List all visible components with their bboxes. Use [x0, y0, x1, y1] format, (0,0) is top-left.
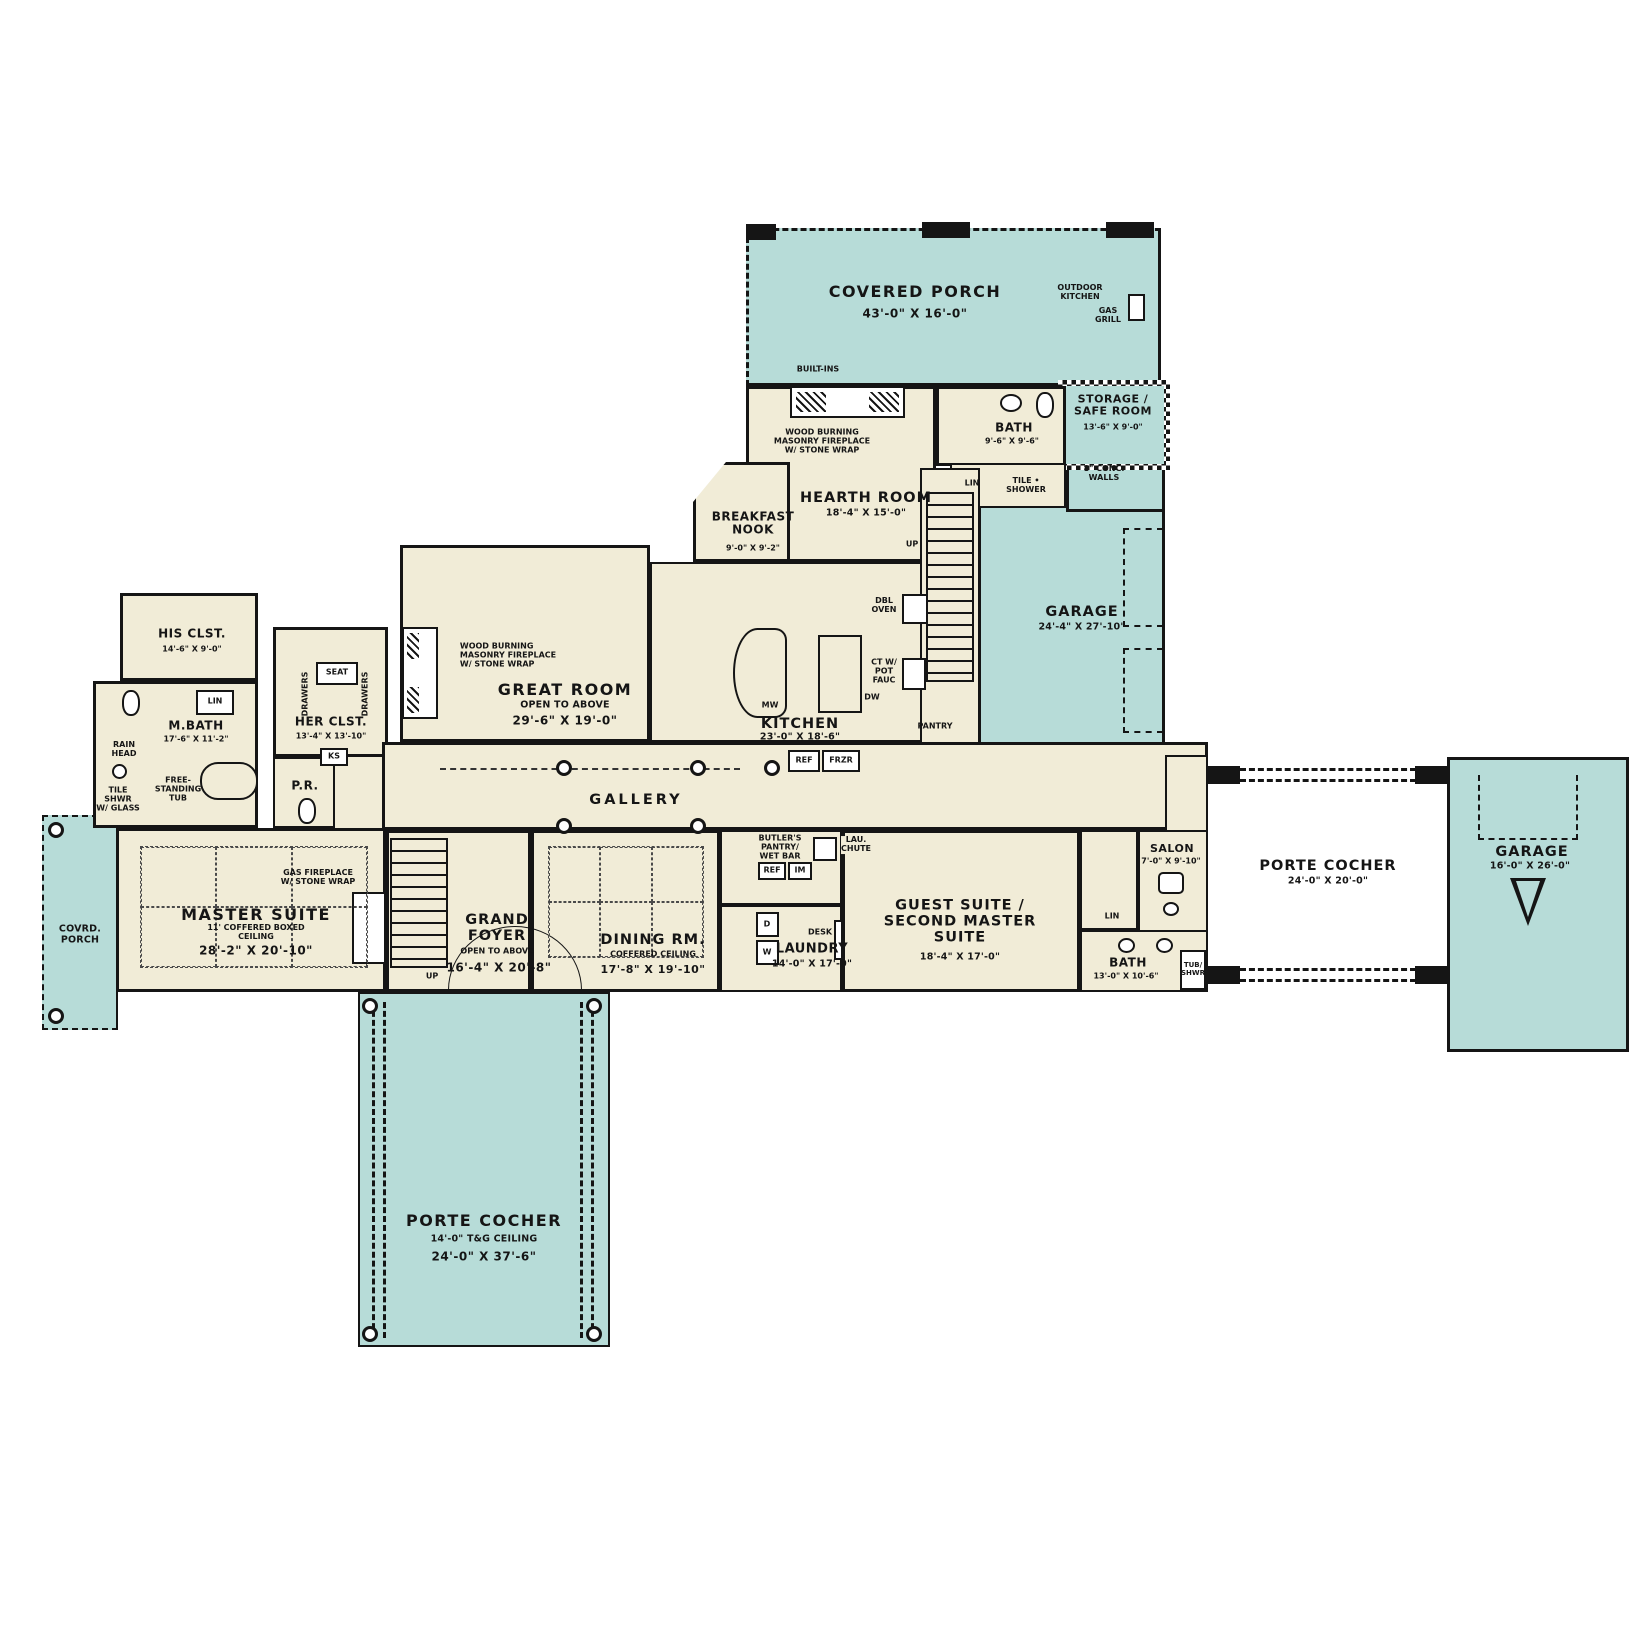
column-post [48, 822, 64, 838]
gallery-column-post [690, 760, 706, 776]
guest-bath-sink-icon [1118, 938, 1135, 953]
gas-grill-label: GAS GRILL [1095, 307, 1121, 325]
beam-post [1415, 766, 1447, 784]
garage-main-label: GARAGE [1045, 604, 1118, 620]
lin-label: LIN [208, 698, 223, 707]
garage-door-recess [1123, 528, 1163, 627]
porte-cocher-bottom-region [358, 992, 610, 1347]
gallery-label: GALLERY [589, 792, 682, 808]
washer-label: W [763, 949, 772, 958]
gallery-column-post [556, 760, 572, 776]
porch-post [746, 224, 776, 240]
great-room-dims: 29'-6" X 19'-0" [512, 714, 617, 727]
guest-suite-dims: 18'-4" X 17'-0" [920, 953, 1000, 964]
drawers-label: DRAWERS [362, 672, 371, 717]
up-label: UP [424, 972, 440, 983]
bath-guest-label: BATH [1109, 956, 1147, 969]
grand-foyer-dims: 16'-4" X 20'-8" [446, 961, 551, 974]
column-post [586, 998, 602, 1014]
great-room-sub: OPEN TO ABOVE [520, 701, 610, 712]
salon-chair-icon [1158, 872, 1184, 894]
dbl-oven-label: DBL OVEN [872, 597, 897, 615]
porte-cocher-beam [1240, 768, 1416, 782]
up-label: UP [904, 540, 920, 551]
storage-label: STORAGE / SAFE ROOM [1074, 394, 1152, 419]
gas-fireplace-label: GAS FIREPLACE W/ STONE WRAP [281, 869, 356, 887]
storage-dims: 13'-6" X 9'-0" [1083, 424, 1142, 433]
gallery-column-post [556, 818, 572, 834]
beam-post [1415, 966, 1447, 984]
her-closet-label: HER CLST. [295, 715, 367, 728]
her-closet-dims: 13'-4" X 13'-10" [296, 733, 367, 742]
outdoor-kitchen-label: OUTDOOR KITCHEN [1057, 284, 1102, 302]
rain-head-label: RAIN HEAD [112, 741, 137, 759]
pantry-label: PANTRY [918, 723, 953, 732]
powder-room-label: P.R. [291, 779, 318, 792]
great-room-fireplace-icon [402, 627, 438, 719]
hearth-room-label: HEARTH ROOM [800, 490, 932, 506]
covered-porch-left-label: COVRD. PORCH [59, 924, 101, 945]
salon-sink-icon [1163, 902, 1179, 916]
dining-room-dims: 17'-8" X 19'-10" [600, 964, 705, 976]
salon-label: SALON [1150, 843, 1194, 855]
beam-post [1208, 766, 1240, 784]
guest-bath-sink-icon [1156, 938, 1173, 953]
lau-chute-label: LAU. CHUTE [841, 836, 871, 854]
freestanding-tub-label: FREE- STANDING TUB [155, 777, 201, 804]
his-closet-dims: 14'-6" X 9'-0" [162, 646, 221, 655]
lin-label: LIN [1105, 913, 1120, 922]
hearth-fireplace-label: WOOD BURNING MASONRY FIREPLACE W/ STONE … [774, 429, 870, 456]
pr-toilet-icon [298, 798, 316, 824]
mbath-toilet-icon [122, 690, 140, 716]
beam-post [1208, 966, 1240, 984]
hearth-room-dims: 18'-4" X 15'-0" [826, 509, 906, 520]
laundry-dims: 14'-0" X 17'-0" [772, 960, 852, 971]
grand-foyer-label: GRAND FOYER [465, 912, 528, 944]
salon-dims: 7'-0" X 9'-10" [1141, 858, 1200, 867]
ref-label: REF [763, 867, 780, 876]
kitchen-stairs [926, 492, 974, 682]
ref-label: REF [795, 757, 812, 766]
gallery-column-post [764, 760, 780, 776]
grand-foyer-sub: OPEN TO ABOVE [460, 948, 533, 957]
foyer-stairs [390, 838, 448, 968]
double-oven-icon [902, 594, 928, 624]
tile-shwr-glass-label: TILE SHWR W/ GLASS [96, 787, 140, 814]
dw-label: DW [864, 694, 879, 703]
bath-top-label: BATH [995, 421, 1033, 434]
rear-entry-region [1165, 755, 1208, 832]
gallery-column-post [690, 818, 706, 834]
butlers-pantry-label: BUTLER'S PANTRY/ WET BAR [759, 835, 802, 862]
butler-sink-icon [813, 837, 837, 861]
great-room-label: GREAT ROOM [498, 681, 632, 699]
porte-cocher-right-dims: 24'-0" X 20'-0" [1288, 877, 1368, 888]
guest-suite-label: GUEST SUITE / SECOND MASTER SUITE [884, 898, 1037, 947]
breakfast-nook-label: BREAKFAST NOOK [712, 511, 795, 538]
dining-room-label: DINING RM. [600, 932, 705, 948]
conc-walls-label: 8" CONC. WALLS [1084, 465, 1125, 483]
porte-cocher-bottom-sub: 14'-0" T&G CEILING [431, 1235, 538, 1246]
bath-top-sink-icon [1000, 394, 1022, 412]
master-suite-sub: 11' COFFERED BOXED CEILING [207, 924, 304, 942]
seat-label: SEAT [326, 669, 348, 678]
porte-cocher-bottom-dashes [580, 1002, 594, 1338]
master-suite-dims: 28'-2" X 20'-10" [199, 944, 313, 957]
cooktop-icon [902, 658, 926, 690]
mw-label: MW [762, 702, 779, 711]
garage-right-dims: 16'-0" X 26'-0" [1490, 862, 1570, 873]
porte-cocher-bottom-dims: 24'-0" X 37'-6" [431, 1250, 536, 1263]
hearth-fireplace-icon [790, 386, 905, 418]
bath-guest-dims: 13'-0" X 10'-6" [1093, 973, 1158, 982]
column-post [362, 998, 378, 1014]
master-bath-label: M.BATH [168, 719, 223, 732]
dryer-label: D [764, 921, 771, 930]
master-bath-dims: 17'-6" X 11'-2" [163, 736, 228, 745]
garage-main-dims: 24'-4" X 27'-10" [1038, 623, 1125, 634]
great-room-fireplace-label: WOOD BURNING MASONRY FIREPLACE W/ STONE … [460, 643, 556, 670]
dining-room-sub: COFFERED CEILING [610, 951, 696, 960]
floor-plan: COVERED PORCH 43'-0" X 16'-0" OUTDOOR KI… [0, 0, 1650, 1650]
im-label: IM [795, 867, 806, 876]
freestanding-tub-icon [200, 762, 258, 800]
breakfast-nook-dims: 9'-0" X 9'-2" [726, 545, 780, 554]
gas-grill-icon [1128, 294, 1145, 321]
porte-cocher-beam [1240, 968, 1416, 982]
built-ins-label: BUILT-INS [797, 366, 839, 375]
garage-right-door-recess [1478, 775, 1578, 840]
tub-shwr-label: TUB/ SHWR [1181, 962, 1205, 978]
master-suite-label: MASTER SUITE [181, 906, 331, 924]
kitchen-dims: 23'-0" X 18'-6" [760, 733, 840, 744]
desk-label: DESK [808, 929, 832, 938]
ks-label: KS [328, 753, 340, 762]
rain-head-icon [112, 764, 127, 779]
bath-top-toilet-icon [1036, 392, 1054, 418]
porte-cocher-bottom-label: PORTE COCHER [406, 1212, 562, 1230]
column-post [362, 1326, 378, 1342]
lin-label: LIN [965, 480, 980, 489]
kitchen-label: KITCHEN [761, 716, 839, 732]
frzr-label: FRZR [829, 757, 853, 766]
porte-cocher-bottom-dashes [372, 1002, 386, 1338]
kitchen-island-rect [818, 635, 862, 713]
his-closet-label: HIS CLST. [158, 627, 226, 640]
porte-cocher-right-label: PORTE COCHER [1259, 858, 1396, 874]
laundry-label: LAUNDRY [776, 943, 848, 958]
tile-shower-label: TILE • SHOWER [1006, 477, 1046, 495]
drawers-label: DRAWERS [302, 672, 311, 717]
bath-top-dims: 9'-6" X 9'-6" [985, 438, 1039, 447]
ct-pot-fauc-label: CT W/ POT FAUC [871, 659, 897, 686]
column-post [48, 1008, 64, 1024]
column-post [586, 1326, 602, 1342]
covered-porch-label: COVERED PORCH [829, 283, 1002, 301]
garage-right-label: GARAGE [1495, 844, 1568, 860]
porch-post [1106, 222, 1154, 238]
garage-door-recess [1123, 648, 1163, 733]
kitchen-island-curved [733, 628, 787, 718]
covered-porch-dims: 43'-0" X 16'-0" [862, 307, 967, 320]
porch-post [922, 222, 970, 238]
